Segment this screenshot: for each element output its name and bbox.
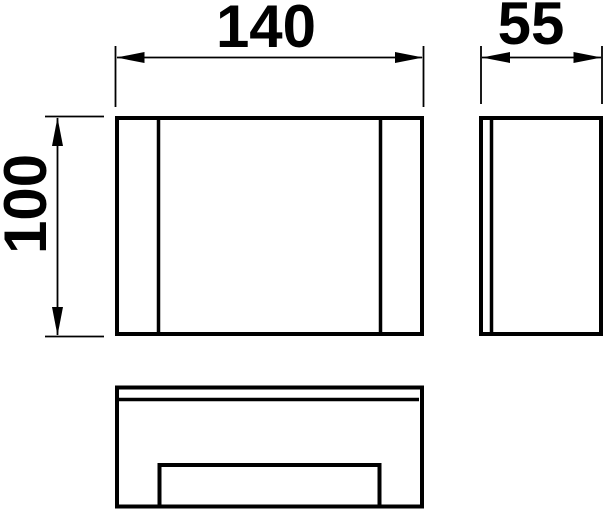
depth-dim-label: 55 [498,0,565,57]
bottom-view-outline [117,388,422,507]
front-view [117,116,422,336]
width-dim-label: 140 [216,0,316,60]
height-dim-arrow-bottom-icon [52,307,63,336]
depth-dim-arrow-right-icon [574,52,602,63]
technical-drawing: 140 55 100 [0,0,605,511]
side-view-outline [481,118,601,334]
width-dimension: 140 [116,0,424,107]
width-dim-arrow-left-icon [117,52,145,63]
height-dim-arrow-top-icon [52,118,63,147]
height-dim-label: 100 [0,154,59,254]
bottom-view-recess-outline [160,465,380,508]
height-dimension: 100 [0,117,104,337]
depth-dimension: 55 [481,0,602,104]
width-dim-arrow-right-icon [395,52,423,63]
bottom-view [115,388,422,509]
drawing-canvas: 140 55 100 [0,0,605,511]
side-view [481,116,601,336]
front-view-outline [117,118,422,334]
